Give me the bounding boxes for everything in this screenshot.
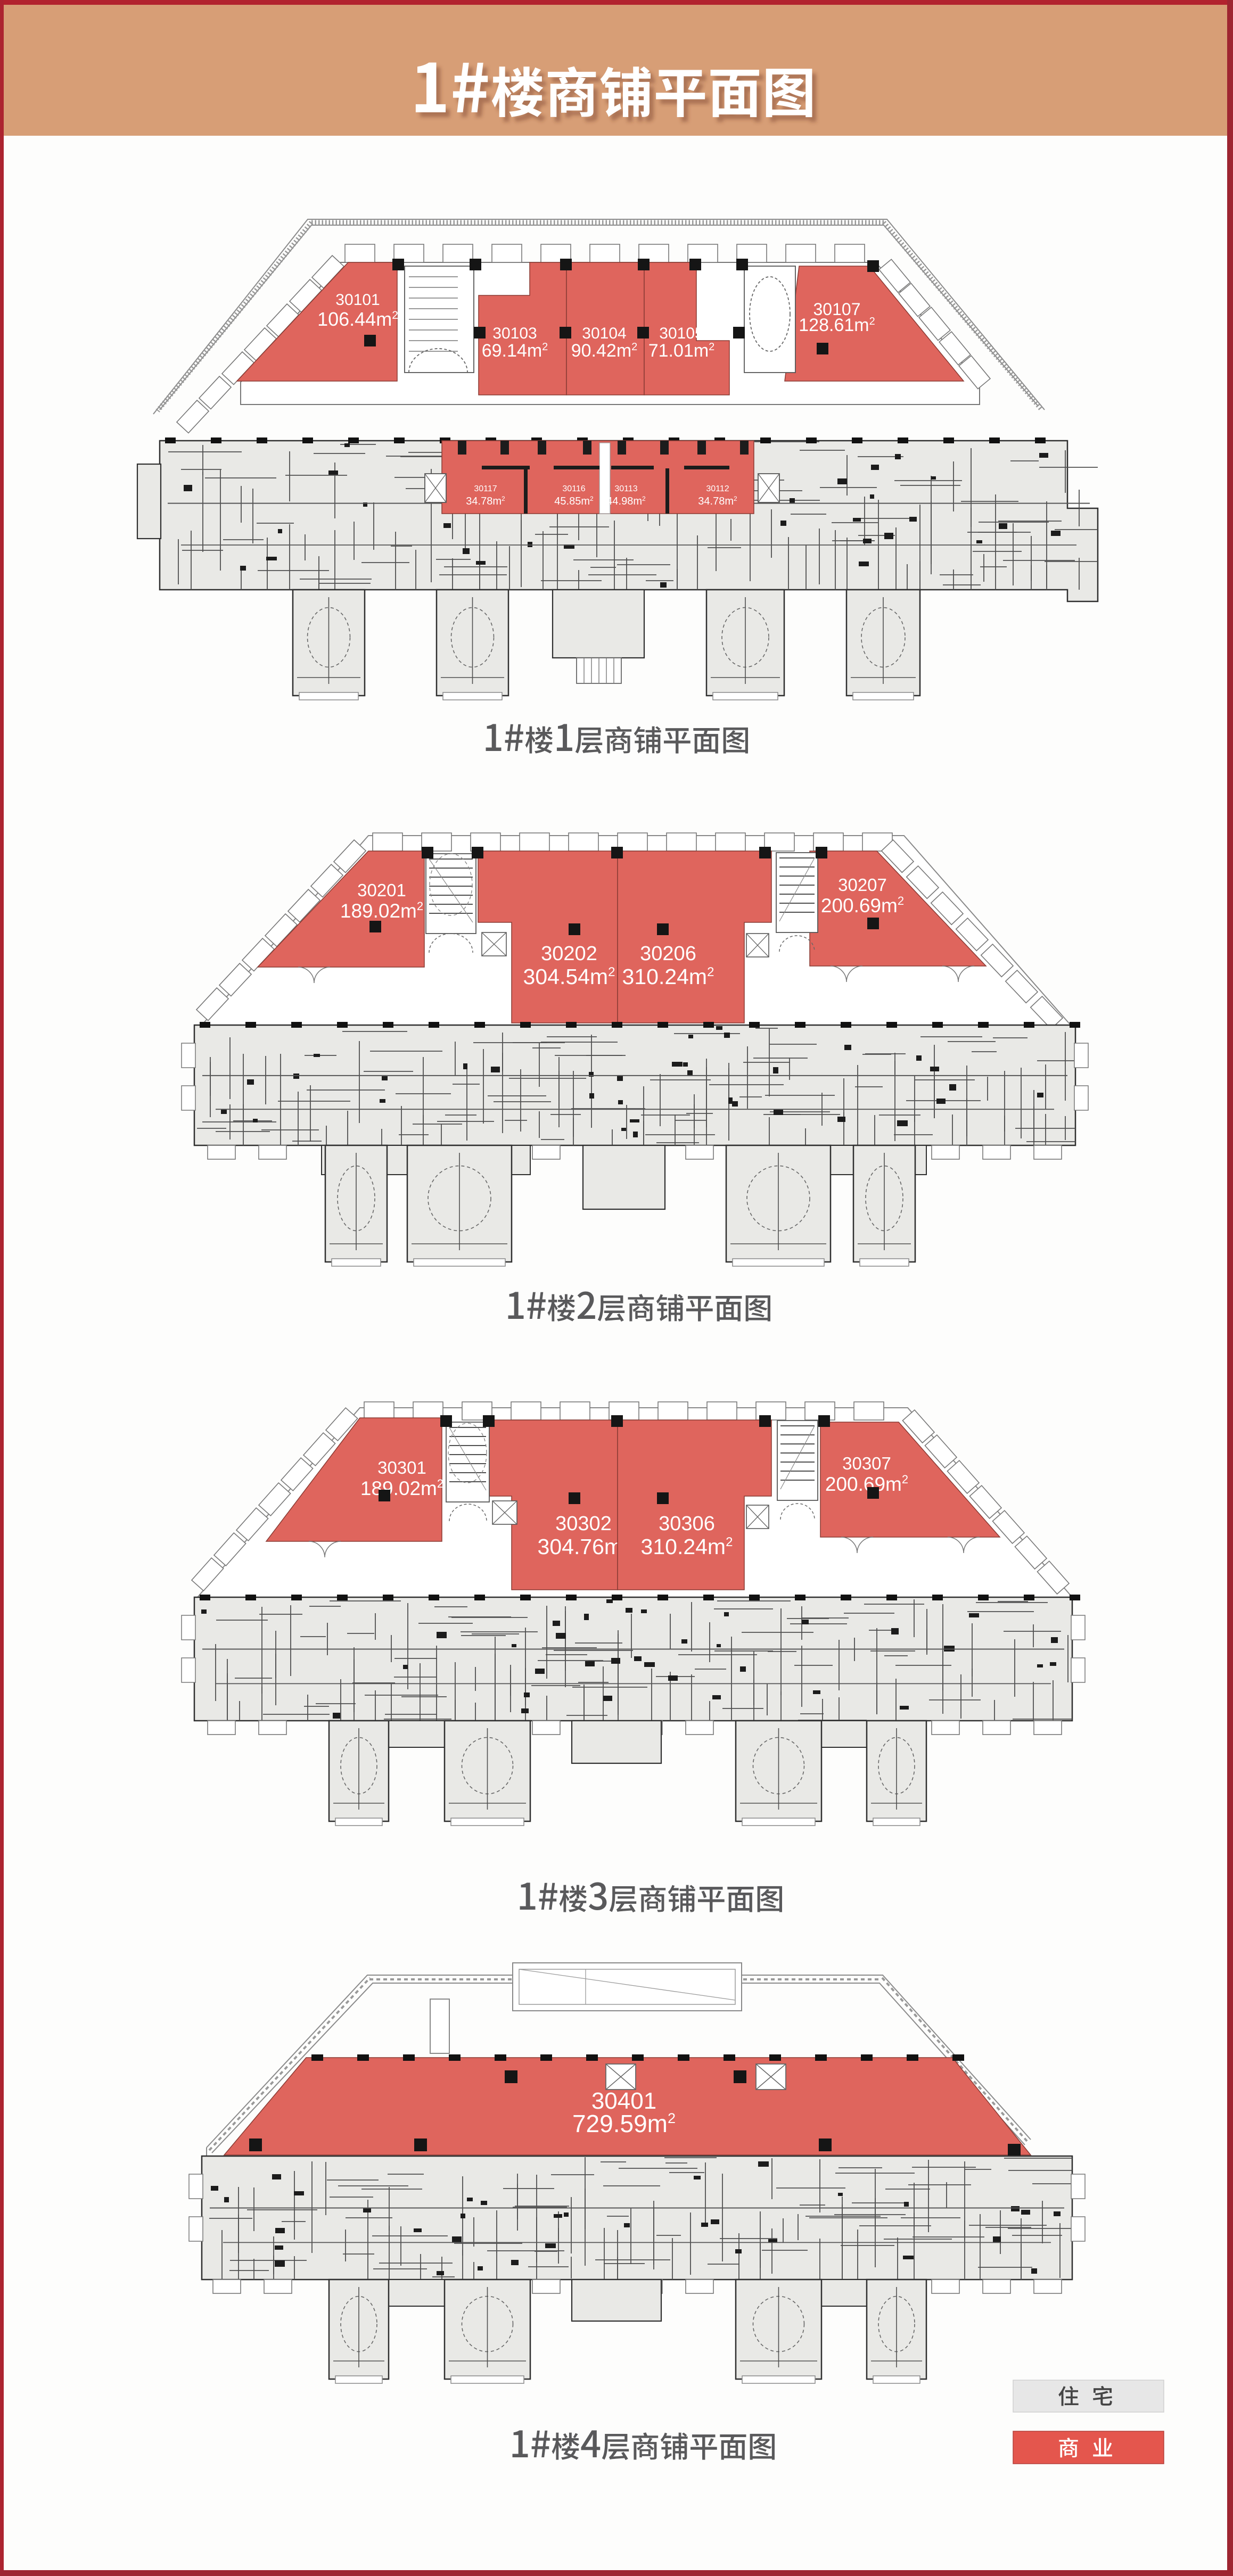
svg-text:45.85m2: 45.85m2: [554, 495, 594, 507]
svg-text:71.01m2: 71.01m2: [648, 341, 715, 361]
svg-text:30113: 30113: [614, 484, 637, 493]
svg-text:200.69m2: 200.69m2: [825, 1473, 908, 1495]
svg-text:30201: 30201: [357, 880, 406, 900]
svg-text:30116: 30116: [562, 484, 585, 493]
svg-text:304.76m2: 304.76m2: [538, 1534, 630, 1559]
svg-text:90.42m2: 90.42m2: [571, 341, 638, 361]
svg-text:30117: 30117: [474, 484, 497, 493]
svg-text:310.24m2: 310.24m2: [622, 964, 714, 989]
svg-text:30301: 30301: [377, 1458, 426, 1477]
svg-text:30104: 30104: [582, 325, 626, 342]
svg-text:30101: 30101: [335, 291, 380, 309]
svg-text:30207: 30207: [838, 875, 887, 895]
svg-text:34.78m2: 34.78m2: [466, 495, 505, 507]
svg-text:69.14m2: 69.14m2: [482, 341, 548, 361]
svg-text:310.24m2: 310.24m2: [641, 1534, 733, 1559]
svg-text:44.98m2: 44.98m2: [606, 495, 646, 507]
svg-text:30105: 30105: [659, 325, 703, 342]
svg-text:200.69m2: 200.69m2: [821, 894, 904, 917]
svg-text:30112: 30112: [706, 484, 729, 493]
svg-text:304.54m2: 304.54m2: [523, 964, 615, 989]
svg-text:189.02m2: 189.02m2: [360, 1477, 443, 1499]
svg-text:30206: 30206: [640, 943, 696, 965]
svg-text:189.02m2: 189.02m2: [340, 899, 423, 922]
svg-text:106.44m2: 106.44m2: [317, 308, 398, 330]
svg-text:30103: 30103: [492, 325, 537, 342]
svg-text:30307: 30307: [842, 1454, 891, 1473]
svg-text:30302: 30302: [555, 1513, 612, 1535]
svg-text:34.78m2: 34.78m2: [698, 495, 737, 507]
svg-text:729.59m2: 729.59m2: [572, 2110, 676, 2137]
svg-text:30306: 30306: [659, 1513, 715, 1535]
svg-text:30202: 30202: [541, 943, 597, 965]
svg-text:128.61m2: 128.61m2: [799, 315, 875, 335]
